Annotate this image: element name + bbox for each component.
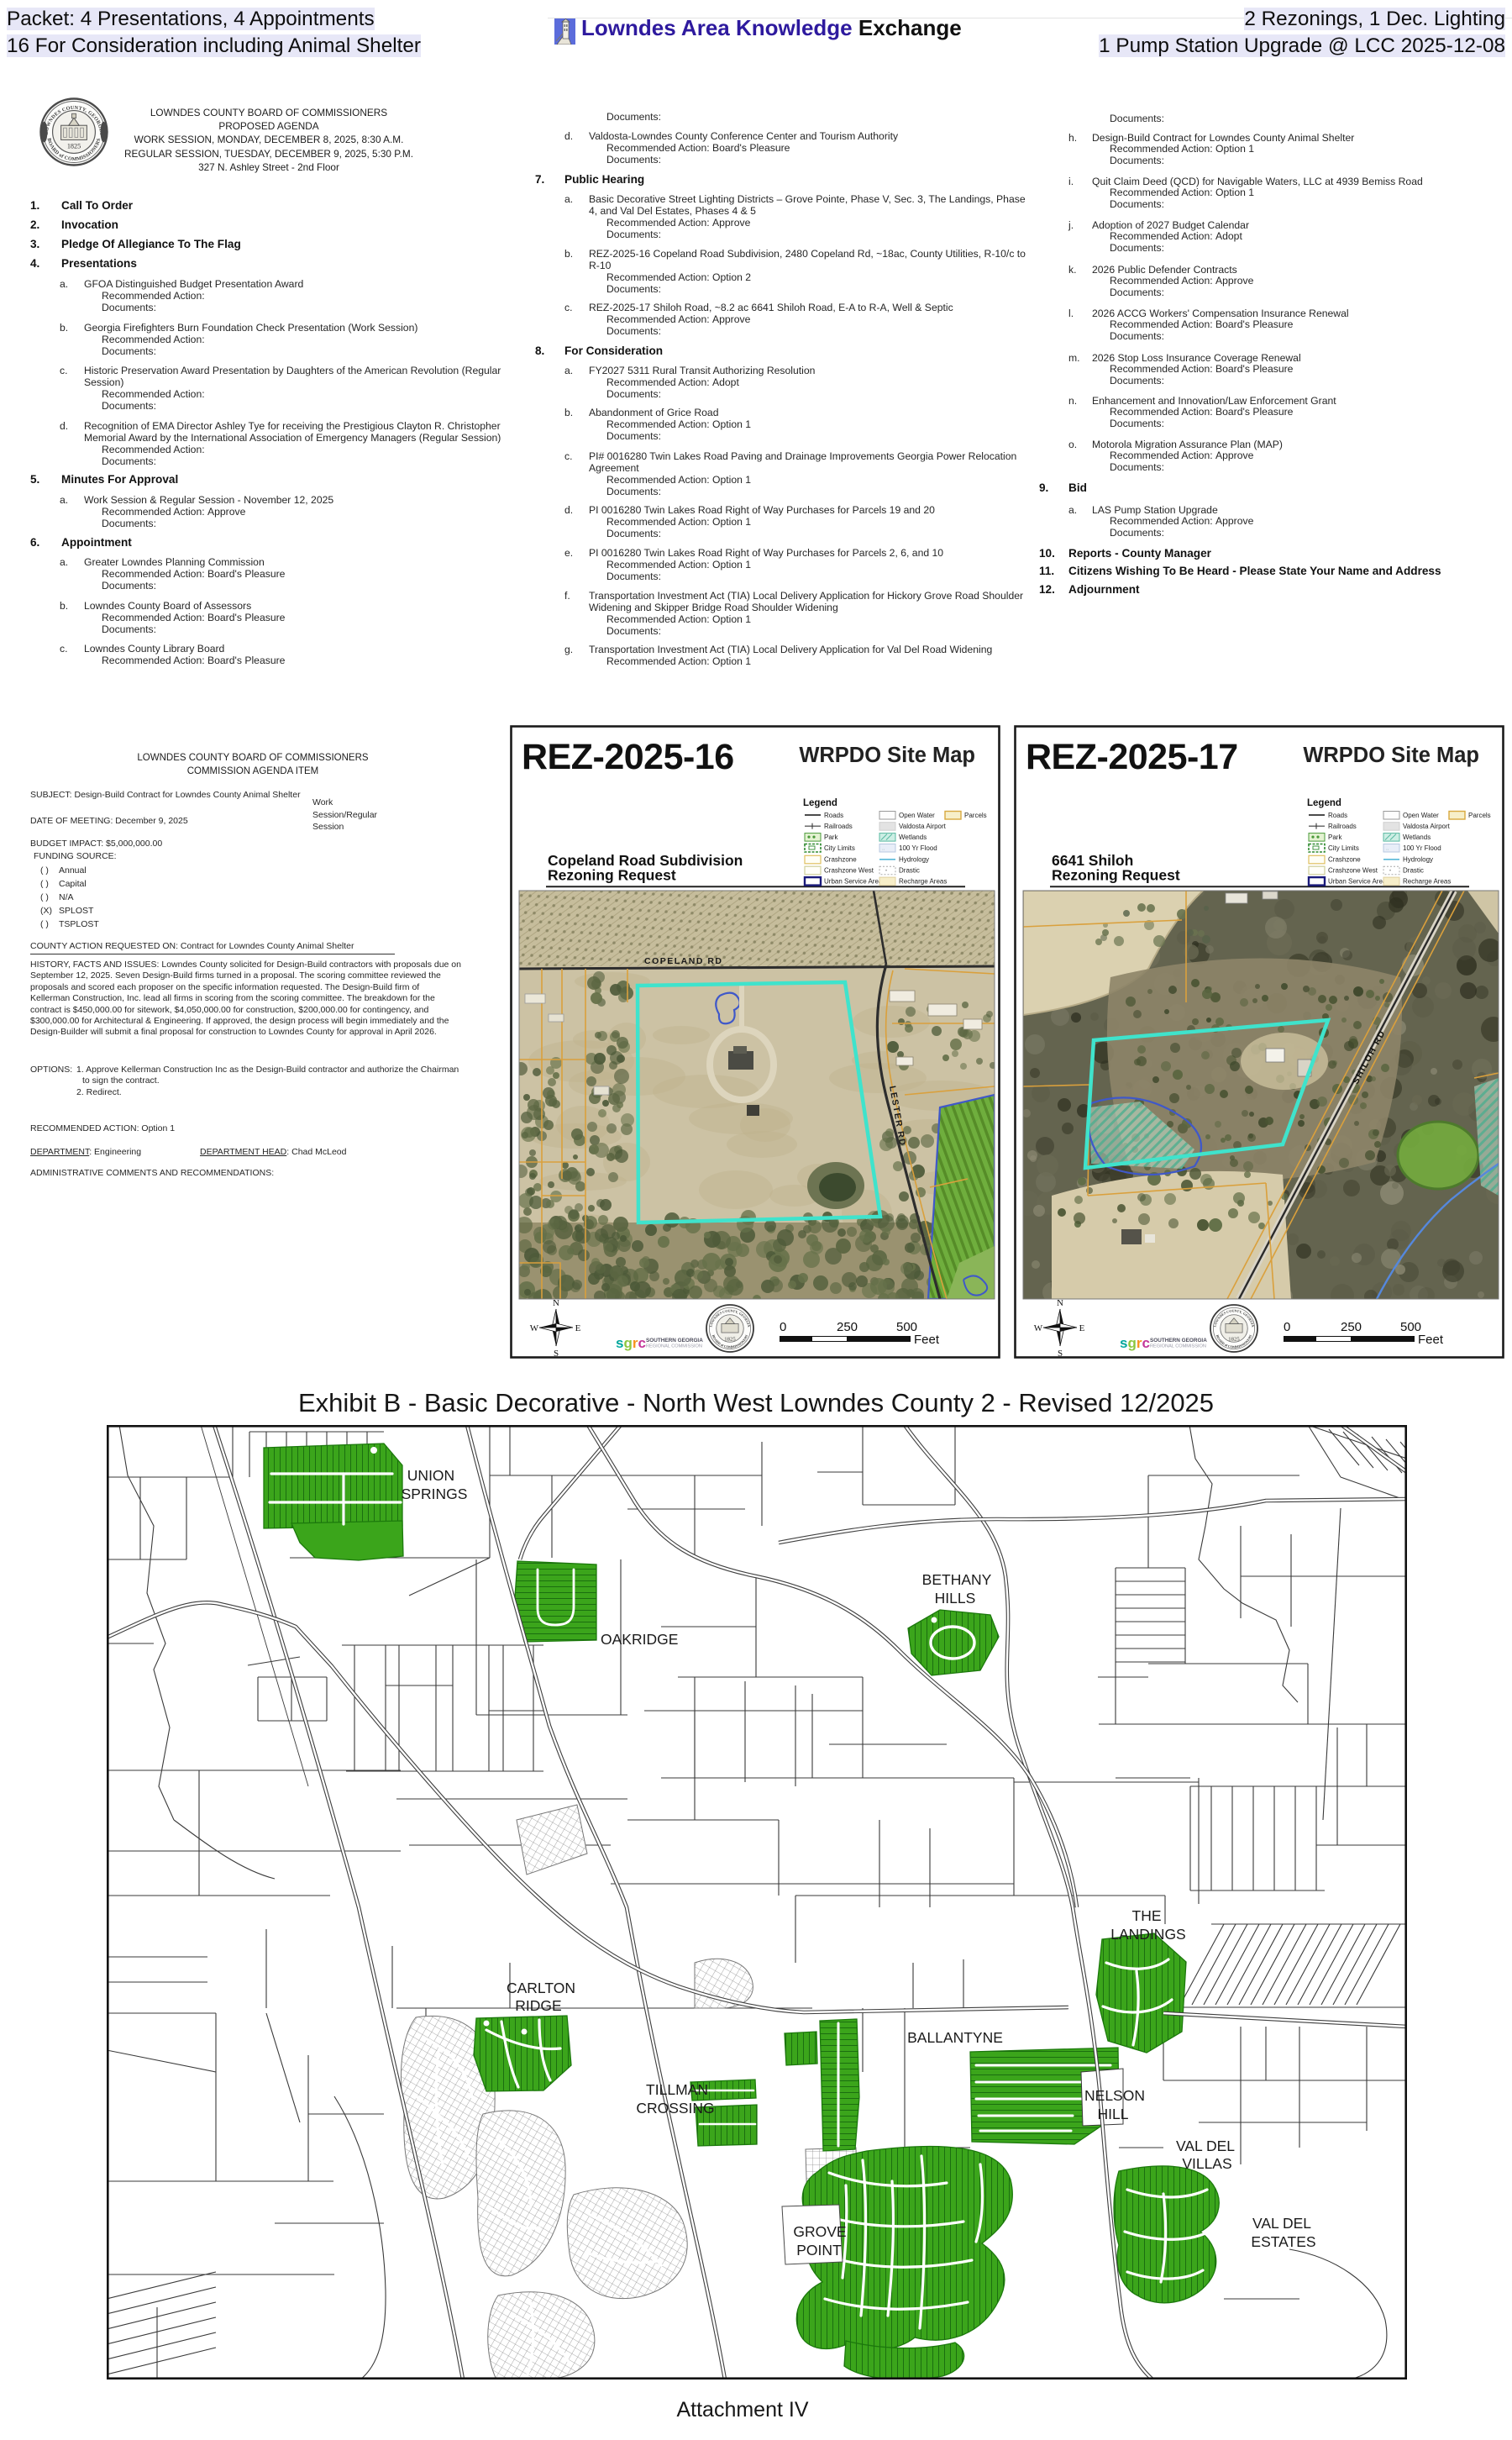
svg-text:sgrc: sgrc (1120, 1335, 1150, 1351)
svg-text:sgrc: sgrc (616, 1335, 646, 1351)
svg-text:Crashzone: Crashzone (824, 856, 857, 864)
svg-text:1825: 1825 (67, 143, 81, 150)
svg-text:Railroads: Railroads (824, 823, 853, 830)
svg-text:250: 250 (1341, 1320, 1362, 1334)
svg-text:Hydrology: Hydrology (899, 856, 929, 864)
svg-text:Roads: Roads (824, 812, 843, 819)
svg-text:Railroads: Railroads (1328, 823, 1357, 830)
svg-text:City Limits: City Limits (824, 844, 855, 852)
svg-text:GROVE: GROVE (793, 2223, 846, 2240)
svg-text:COPELAND RD: COPELAND RD (644, 956, 723, 966)
svg-text:VAL DEL: VAL DEL (1252, 2215, 1311, 2232)
svg-text:N: N (553, 1298, 559, 1308)
svg-text:SPRINGS: SPRINGS (402, 1486, 468, 1502)
svg-text:Roads: Roads (1328, 812, 1347, 819)
svg-text:E: E (575, 1323, 581, 1333)
svg-text:HILL: HILL (1098, 2106, 1129, 2122)
svg-text:WRPDO Site Map: WRPDO Site Map (799, 744, 975, 767)
svg-text:Rezoning Request: Rezoning Request (1052, 867, 1180, 884)
svg-text:REGIONAL COMMISSION: REGIONAL COMMISSION (1150, 1344, 1206, 1349)
svg-text:Wetlands: Wetlands (899, 833, 927, 841)
svg-text:REZ-2025-17: REZ-2025-17 (1026, 737, 1238, 777)
svg-text:100 Yr Flood: 100 Yr Flood (1403, 844, 1441, 852)
svg-text:REGIONAL COMMISSION: REGIONAL COMMISSION (646, 1344, 702, 1349)
svg-text:VAL DEL: VAL DEL (1176, 2138, 1235, 2154)
svg-text:S: S (1058, 1349, 1063, 1359)
svg-text:N: N (1057, 1298, 1063, 1308)
svg-text:Legend: Legend (803, 798, 837, 808)
svg-text:E: E (1079, 1323, 1085, 1333)
svg-text:CARLTON: CARLTON (507, 1980, 575, 1996)
svg-text:Urban Service Area: Urban Service Area (824, 878, 883, 886)
svg-text:POINT: POINT (796, 2242, 842, 2259)
svg-text:Crashzone West: Crashzone West (1328, 867, 1378, 875)
svg-text:Park: Park (1328, 833, 1342, 841)
svg-text:NELSON: NELSON (1084, 2087, 1145, 2104)
svg-text:BETHANY: BETHANY (922, 1571, 992, 1588)
svg-text:CROSSING: CROSSING (636, 2100, 714, 2117)
svg-text:Feet: Feet (1418, 1333, 1444, 1347)
svg-text:BALLANTYNE: BALLANTYNE (907, 2029, 1003, 2046)
svg-text:SOUTHERN GEORGIA: SOUTHERN GEORGIA (1150, 1338, 1207, 1344)
svg-text:Recharge Areas: Recharge Areas (899, 878, 947, 886)
svg-text:HILLS: HILLS (935, 1590, 976, 1607)
svg-text:Park: Park (824, 833, 838, 841)
svg-text:250: 250 (837, 1320, 858, 1334)
svg-text:REZ-2025-16: REZ-2025-16 (522, 737, 734, 777)
svg-text:Wetlands: Wetlands (1403, 833, 1431, 841)
svg-text:Parcels: Parcels (964, 812, 987, 819)
svg-text:Legend: Legend (1307, 798, 1341, 808)
svg-text:VILLAS: VILLAS (1182, 2155, 1231, 2172)
svg-text:LANDINGS: LANDINGS (1110, 1926, 1185, 1943)
svg-text:..: .. (882, 847, 885, 852)
svg-text:Rezoning Request: Rezoning Request (548, 867, 676, 884)
svg-text:Crashzone: Crashzone (1328, 856, 1361, 864)
svg-text:..: .. (1386, 847, 1389, 852)
svg-text:Feet: Feet (914, 1333, 940, 1347)
svg-text:Hydrology: Hydrology (1403, 856, 1433, 864)
svg-text:0: 0 (1284, 1320, 1290, 1334)
svg-text:Urban Service Area: Urban Service Area (1328, 878, 1387, 886)
svg-text:Open Water: Open Water (1403, 812, 1439, 819)
svg-text:Crashzone West: Crashzone West (824, 867, 874, 875)
svg-text:Open Water: Open Water (899, 812, 935, 819)
svg-text:Valdosta Airport: Valdosta Airport (899, 823, 947, 830)
svg-text:TILLMAN: TILLMAN (646, 2081, 708, 2098)
svg-text:W: W (1034, 1323, 1043, 1333)
svg-text:RIDGE: RIDGE (515, 1997, 561, 2014)
svg-text:UNION: UNION (407, 1467, 454, 1484)
svg-text:ESTATES: ESTATES (1251, 2233, 1315, 2250)
svg-text:Parcels: Parcels (1468, 812, 1491, 819)
svg-text:1825: 1825 (724, 1337, 736, 1343)
svg-text:0: 0 (780, 1320, 786, 1334)
svg-text:THE: THE (1132, 1907, 1162, 1924)
svg-text:Recharge Areas: Recharge Areas (1403, 878, 1451, 886)
svg-text:Drastic: Drastic (899, 867, 920, 875)
svg-text:City Limits: City Limits (1328, 844, 1359, 852)
svg-text:OAKRIDGE: OAKRIDGE (601, 1631, 678, 1648)
svg-text:100 Yr Flood: 100 Yr Flood (899, 844, 937, 852)
svg-text:SOUTHERN GEORGIA: SOUTHERN GEORGIA (646, 1338, 703, 1344)
svg-text:W: W (530, 1323, 539, 1333)
svg-text:S: S (554, 1349, 559, 1359)
svg-text:Valdosta Airport: Valdosta Airport (1403, 823, 1451, 830)
svg-text:Drastic: Drastic (1403, 867, 1424, 875)
svg-text:WRPDO Site Map: WRPDO Site Map (1303, 744, 1479, 767)
svg-text:1825: 1825 (1228, 1337, 1240, 1343)
